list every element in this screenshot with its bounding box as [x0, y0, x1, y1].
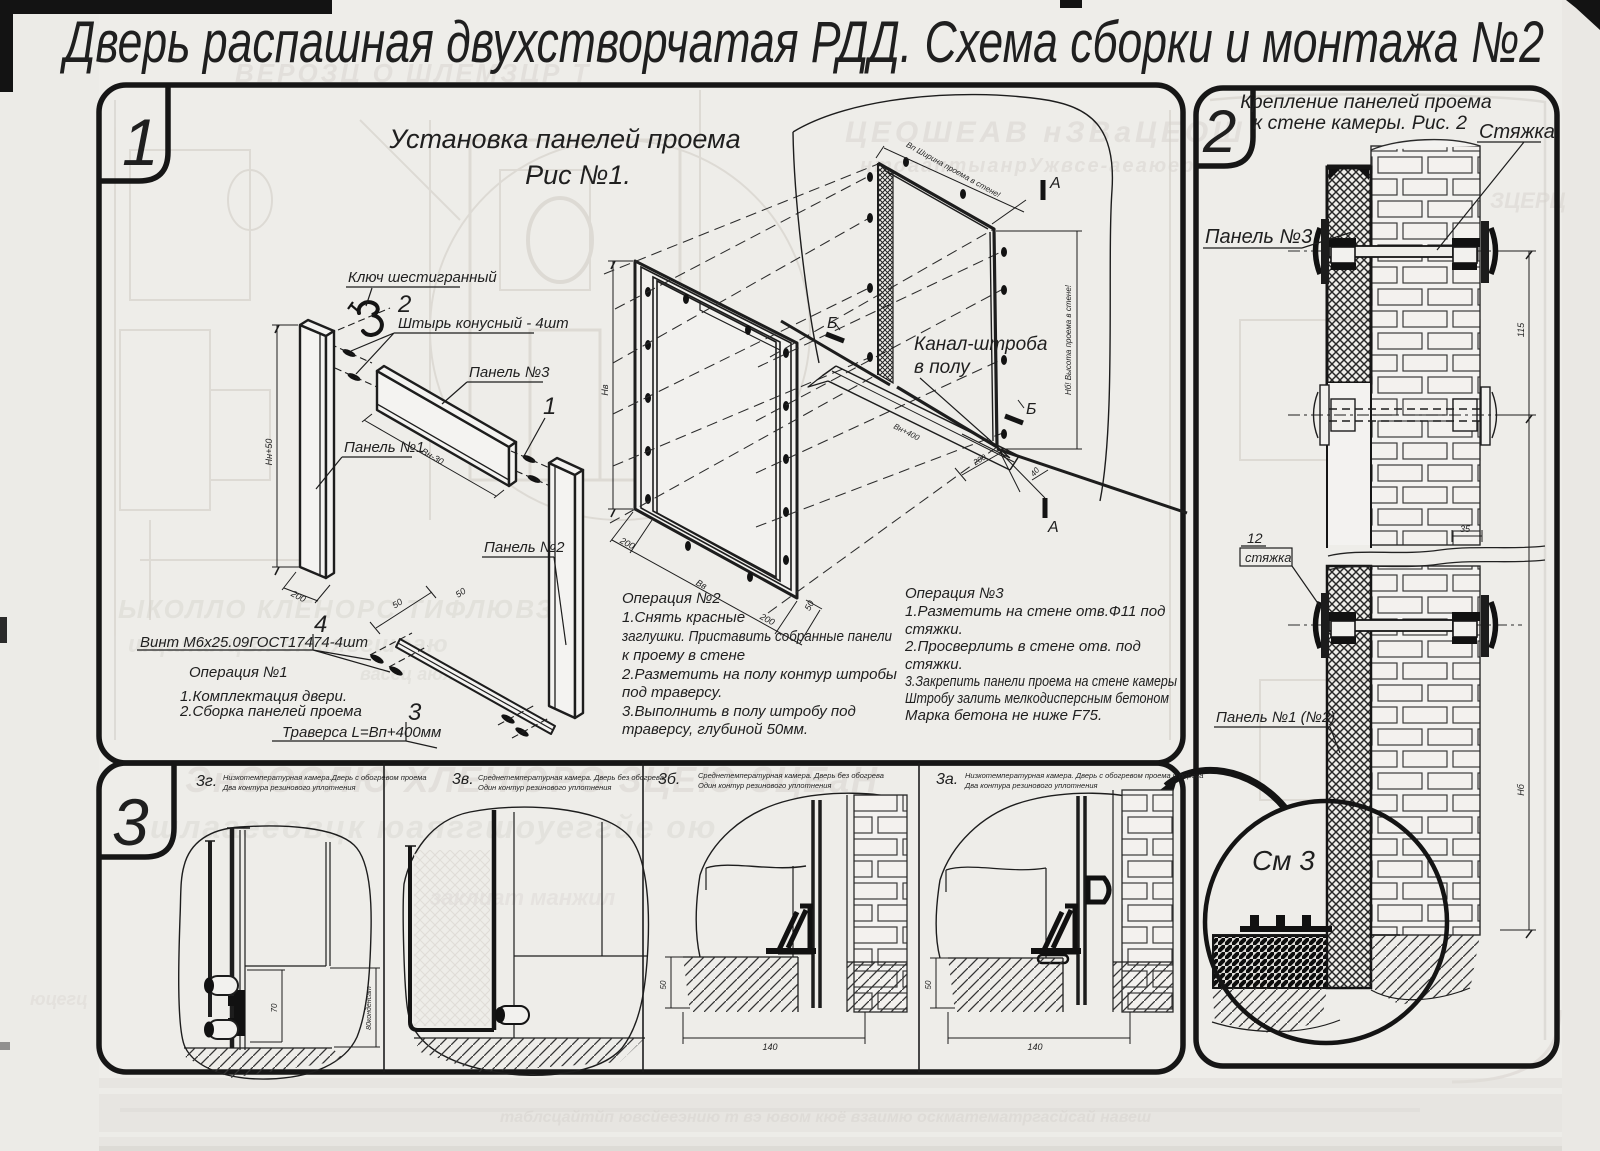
svg-text:Операция №2: Операция №2 [622, 590, 721, 607]
svg-text:траверсу, глубиной 50мм.: траверсу, глубиной 50мм. [622, 721, 808, 738]
svg-text:Стяжка: Стяжка [1479, 121, 1555, 143]
svg-text:2: 2 [1202, 98, 1236, 165]
svg-text:Панель №3: Панель №3 [469, 364, 550, 381]
svg-text:70: 70 [270, 1003, 279, 1012]
svg-text:2.Просверлить в стене отв.: 2.Просверлить в стене отв. под [904, 638, 1141, 655]
svg-text:Операция №3: Операция №3 [905, 585, 1004, 602]
svg-text:140: 140 [762, 1042, 777, 1052]
svg-text:стяжки.: стяжки. [905, 656, 963, 673]
svg-text:Два контура резинового уплотне: Два контура резинового уплотнения [964, 781, 1098, 790]
svg-text:Панель №1: Панель №1 [344, 439, 424, 456]
svg-text:стяжка: стяжка [1245, 550, 1291, 565]
svg-text:Крепление панелей проема: Крепление панелей проема [1240, 91, 1492, 113]
svg-text:Один контур резинового уплотне: Один контур резинового уплотнения [478, 783, 611, 792]
svg-text:1: 1 [122, 105, 159, 179]
svg-text:Штырь конусный - 4шт: Штырь конусный - 4шт [398, 315, 569, 332]
svg-text:Два контура резинового уплотне: Два контура резинового уплотнения [222, 783, 356, 792]
svg-text:2: 2 [397, 291, 411, 318]
svg-text:3: 3 [112, 785, 149, 859]
svg-text:Рис №1.: Рис №1. [525, 160, 631, 190]
svg-text:Операция №1: Операция №1 [189, 664, 288, 681]
svg-text:35: 35 [1460, 524, 1471, 534]
svg-text:Низкотемпературная камера. Две: Низкотемпературная камера. Дверь с обогр… [965, 771, 1203, 780]
svg-text:Дверь распашная двухстворчатая: Дверь распашная двухстворчатая РДД. Схем… [59, 10, 1544, 75]
svg-text:в полу: в полу [914, 357, 971, 378]
svg-text:к стене камеры. Рис. 2: к стене камеры. Рис. 2 [1253, 112, 1467, 134]
svg-text:Нн+50: Нн+50 [264, 439, 274, 466]
svg-text:Марка бетона не ниже F75.: Марка бетона не ниже F75. [905, 707, 1102, 724]
svg-text:Нб: Нб [1516, 783, 1526, 795]
svg-text:Нв: Нв [600, 384, 610, 395]
svg-text:стяжки.: стяжки. [905, 621, 963, 638]
svg-text:Панель №1 (№2): Панель №1 (№2) [1216, 709, 1335, 726]
svg-text:12: 12 [1247, 530, 1263, 546]
svg-text:1.Снять красные: 1.Снять красные [622, 609, 745, 626]
svg-text:Панель №3: Панель №3 [1205, 226, 1312, 248]
svg-text:А: А [1047, 519, 1059, 536]
svg-text:Канал-штроба: Канал-штроба [914, 334, 1047, 355]
svg-text:под траверсу.: под траверсу. [622, 684, 722, 701]
svg-text:См 3: См 3 [1252, 845, 1315, 876]
svg-text:Один контур резинового уплотне: Один контур резинового уплотнения [698, 781, 831, 790]
svg-text:Низкотемпературная камера.Двер: Низкотемпературная камера.Дверь с обогре… [223, 773, 427, 782]
svg-text:Штробу залить мелкодисперсным: Штробу залить мелкодисперсным бетоном [905, 690, 1169, 707]
svg-text:3в.: 3в. [452, 771, 474, 788]
svg-text:3г.: 3г. [196, 773, 217, 790]
svg-text:А: А [1049, 175, 1061, 192]
svg-text:Винт М6х25.09ГОСТ17474-4шт: Винт М6х25.09ГОСТ17474-4шт [140, 634, 368, 651]
svg-text:Среднетемпературная камера. Дв: Среднетемпературная камера. Дверь без об… [478, 773, 664, 782]
svg-text:1: 1 [543, 393, 556, 420]
svg-text:Б: Б [827, 315, 837, 332]
svg-text:Панель №2: Панель №2 [484, 539, 565, 556]
svg-text:к проему в стене: к проему в стене [622, 647, 745, 664]
svg-text:заглушки. Приставить собранные: заглушки. Приставить собранные панели [621, 628, 892, 645]
svg-text:Среднетемпературная камера. Дв: Среднетемпературная камера. Дверь без об… [698, 771, 884, 780]
svg-text:3: 3 [408, 699, 422, 726]
svg-text:Б: Б [1026, 401, 1036, 418]
svg-text:3а.: 3а. [936, 771, 958, 788]
svg-text:50: 50 [924, 980, 933, 989]
svg-text:3.Закрепить панели проема на с: 3.Закрепить панели проема на стене камер… [905, 673, 1177, 690]
svg-text:2.Сборка панелей проема: 2.Сборка панелей проема [179, 703, 362, 720]
svg-text:115: 115 [1516, 322, 1526, 337]
svg-text:80конденсат: 80конденсат [365, 986, 373, 1030]
svg-text:50: 50 [659, 980, 668, 989]
svg-text:Нб! Высота проема в стене!: Нб! Высота проема в стене! [1064, 284, 1073, 395]
svg-text:3.Выполнить в полу штробу под: 3.Выполнить в полу штробу под [622, 703, 856, 720]
svg-text:Установка панелей проема: Установка панелей проема [388, 124, 740, 154]
svg-text:Траверса L=Вп+400мм: Траверса L=Вп+400мм [282, 724, 441, 741]
svg-text:140: 140 [1027, 1042, 1042, 1052]
svg-text:2.Разметить на полу контур штр: 2.Разметить на полу контур штробы [621, 666, 897, 683]
svg-text:1.Разметить на стене отв.Ф11 п: 1.Разметить на стене отв.Ф11 под [905, 603, 1165, 620]
svg-text:Ключ шестигранный: Ключ шестигранный [348, 269, 497, 286]
svg-text:3б.: 3б. [658, 771, 680, 788]
